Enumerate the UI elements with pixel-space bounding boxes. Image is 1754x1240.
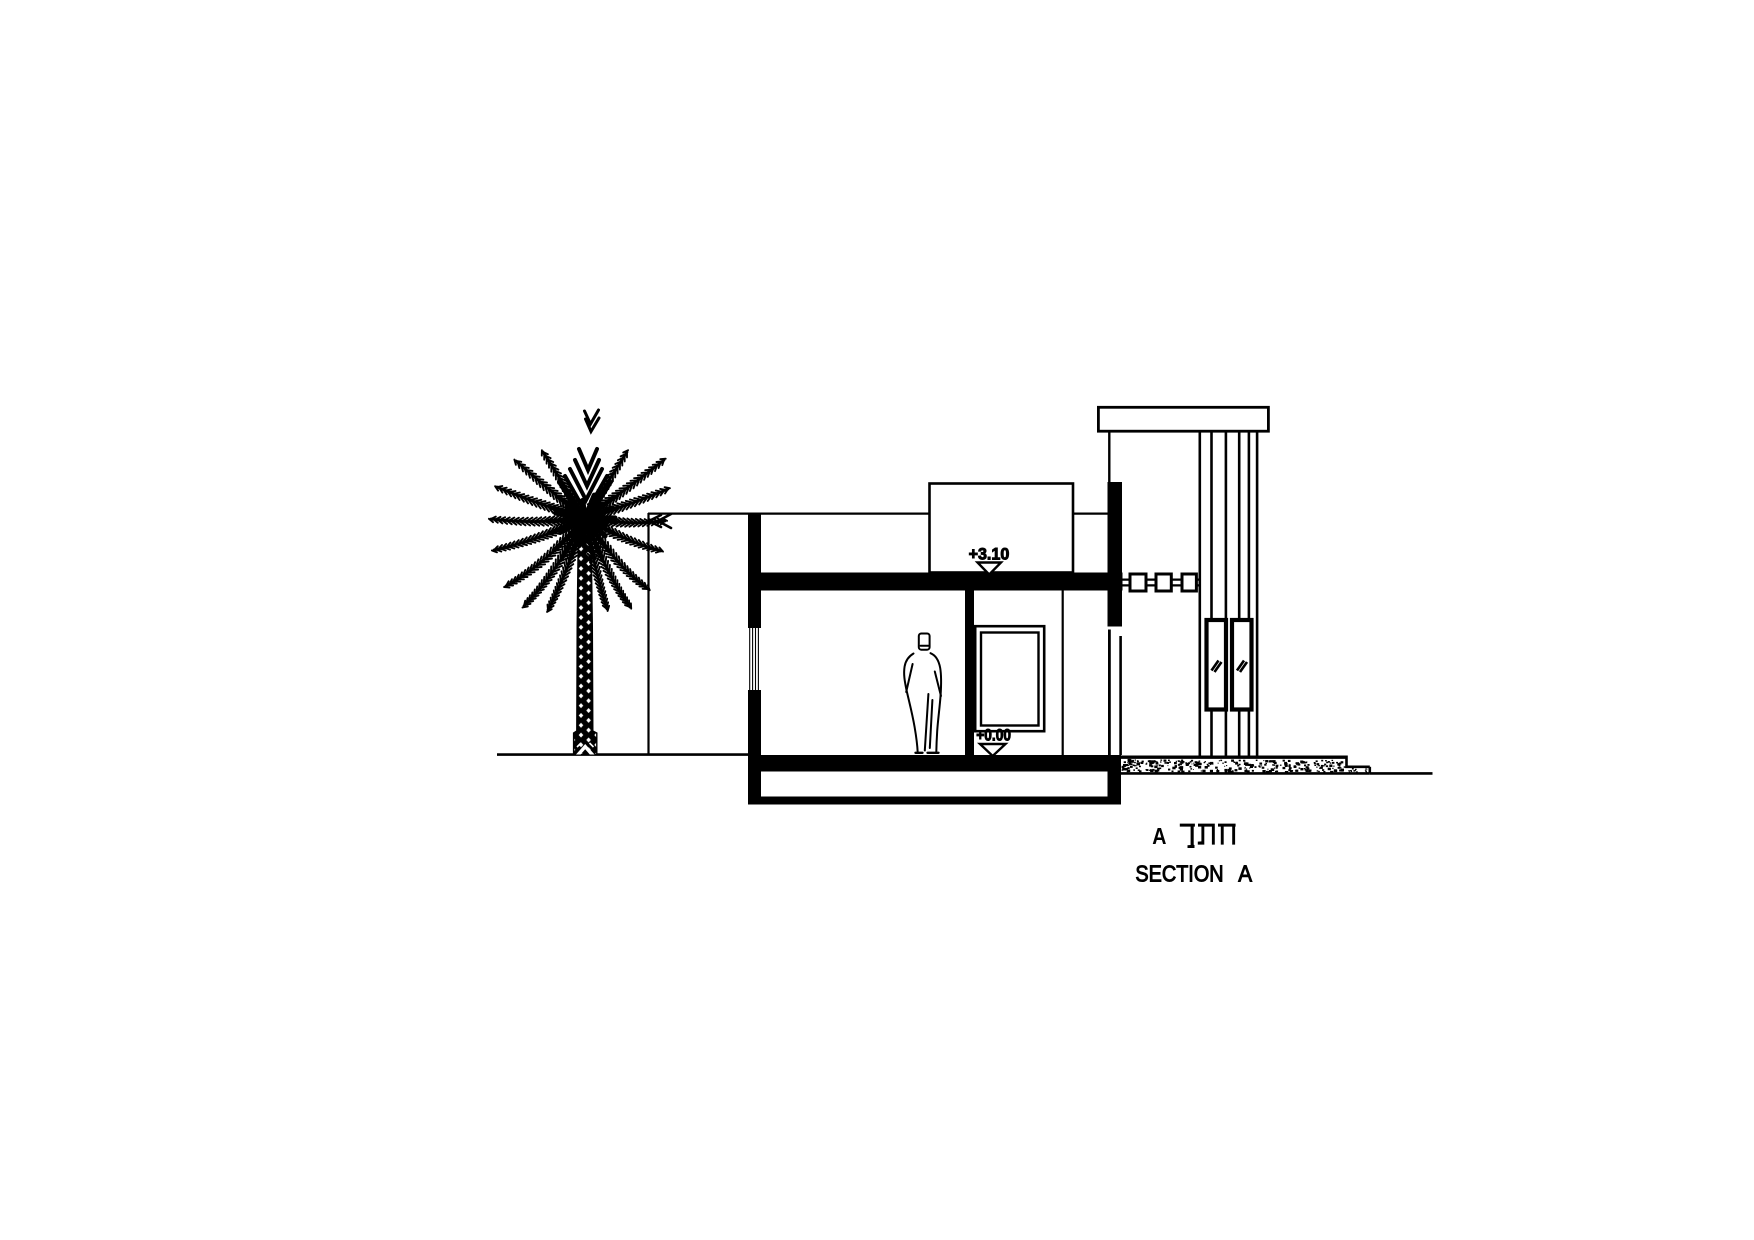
svg-text:A: A bbox=[1238, 861, 1252, 887]
svg-text:+0.00: +0.00 bbox=[976, 726, 1011, 745]
svg-text:SECTION: SECTION bbox=[1135, 861, 1223, 887]
svg-text:A: A bbox=[1152, 823, 1166, 849]
svg-text:+3.10: +3.10 bbox=[969, 545, 1010, 564]
